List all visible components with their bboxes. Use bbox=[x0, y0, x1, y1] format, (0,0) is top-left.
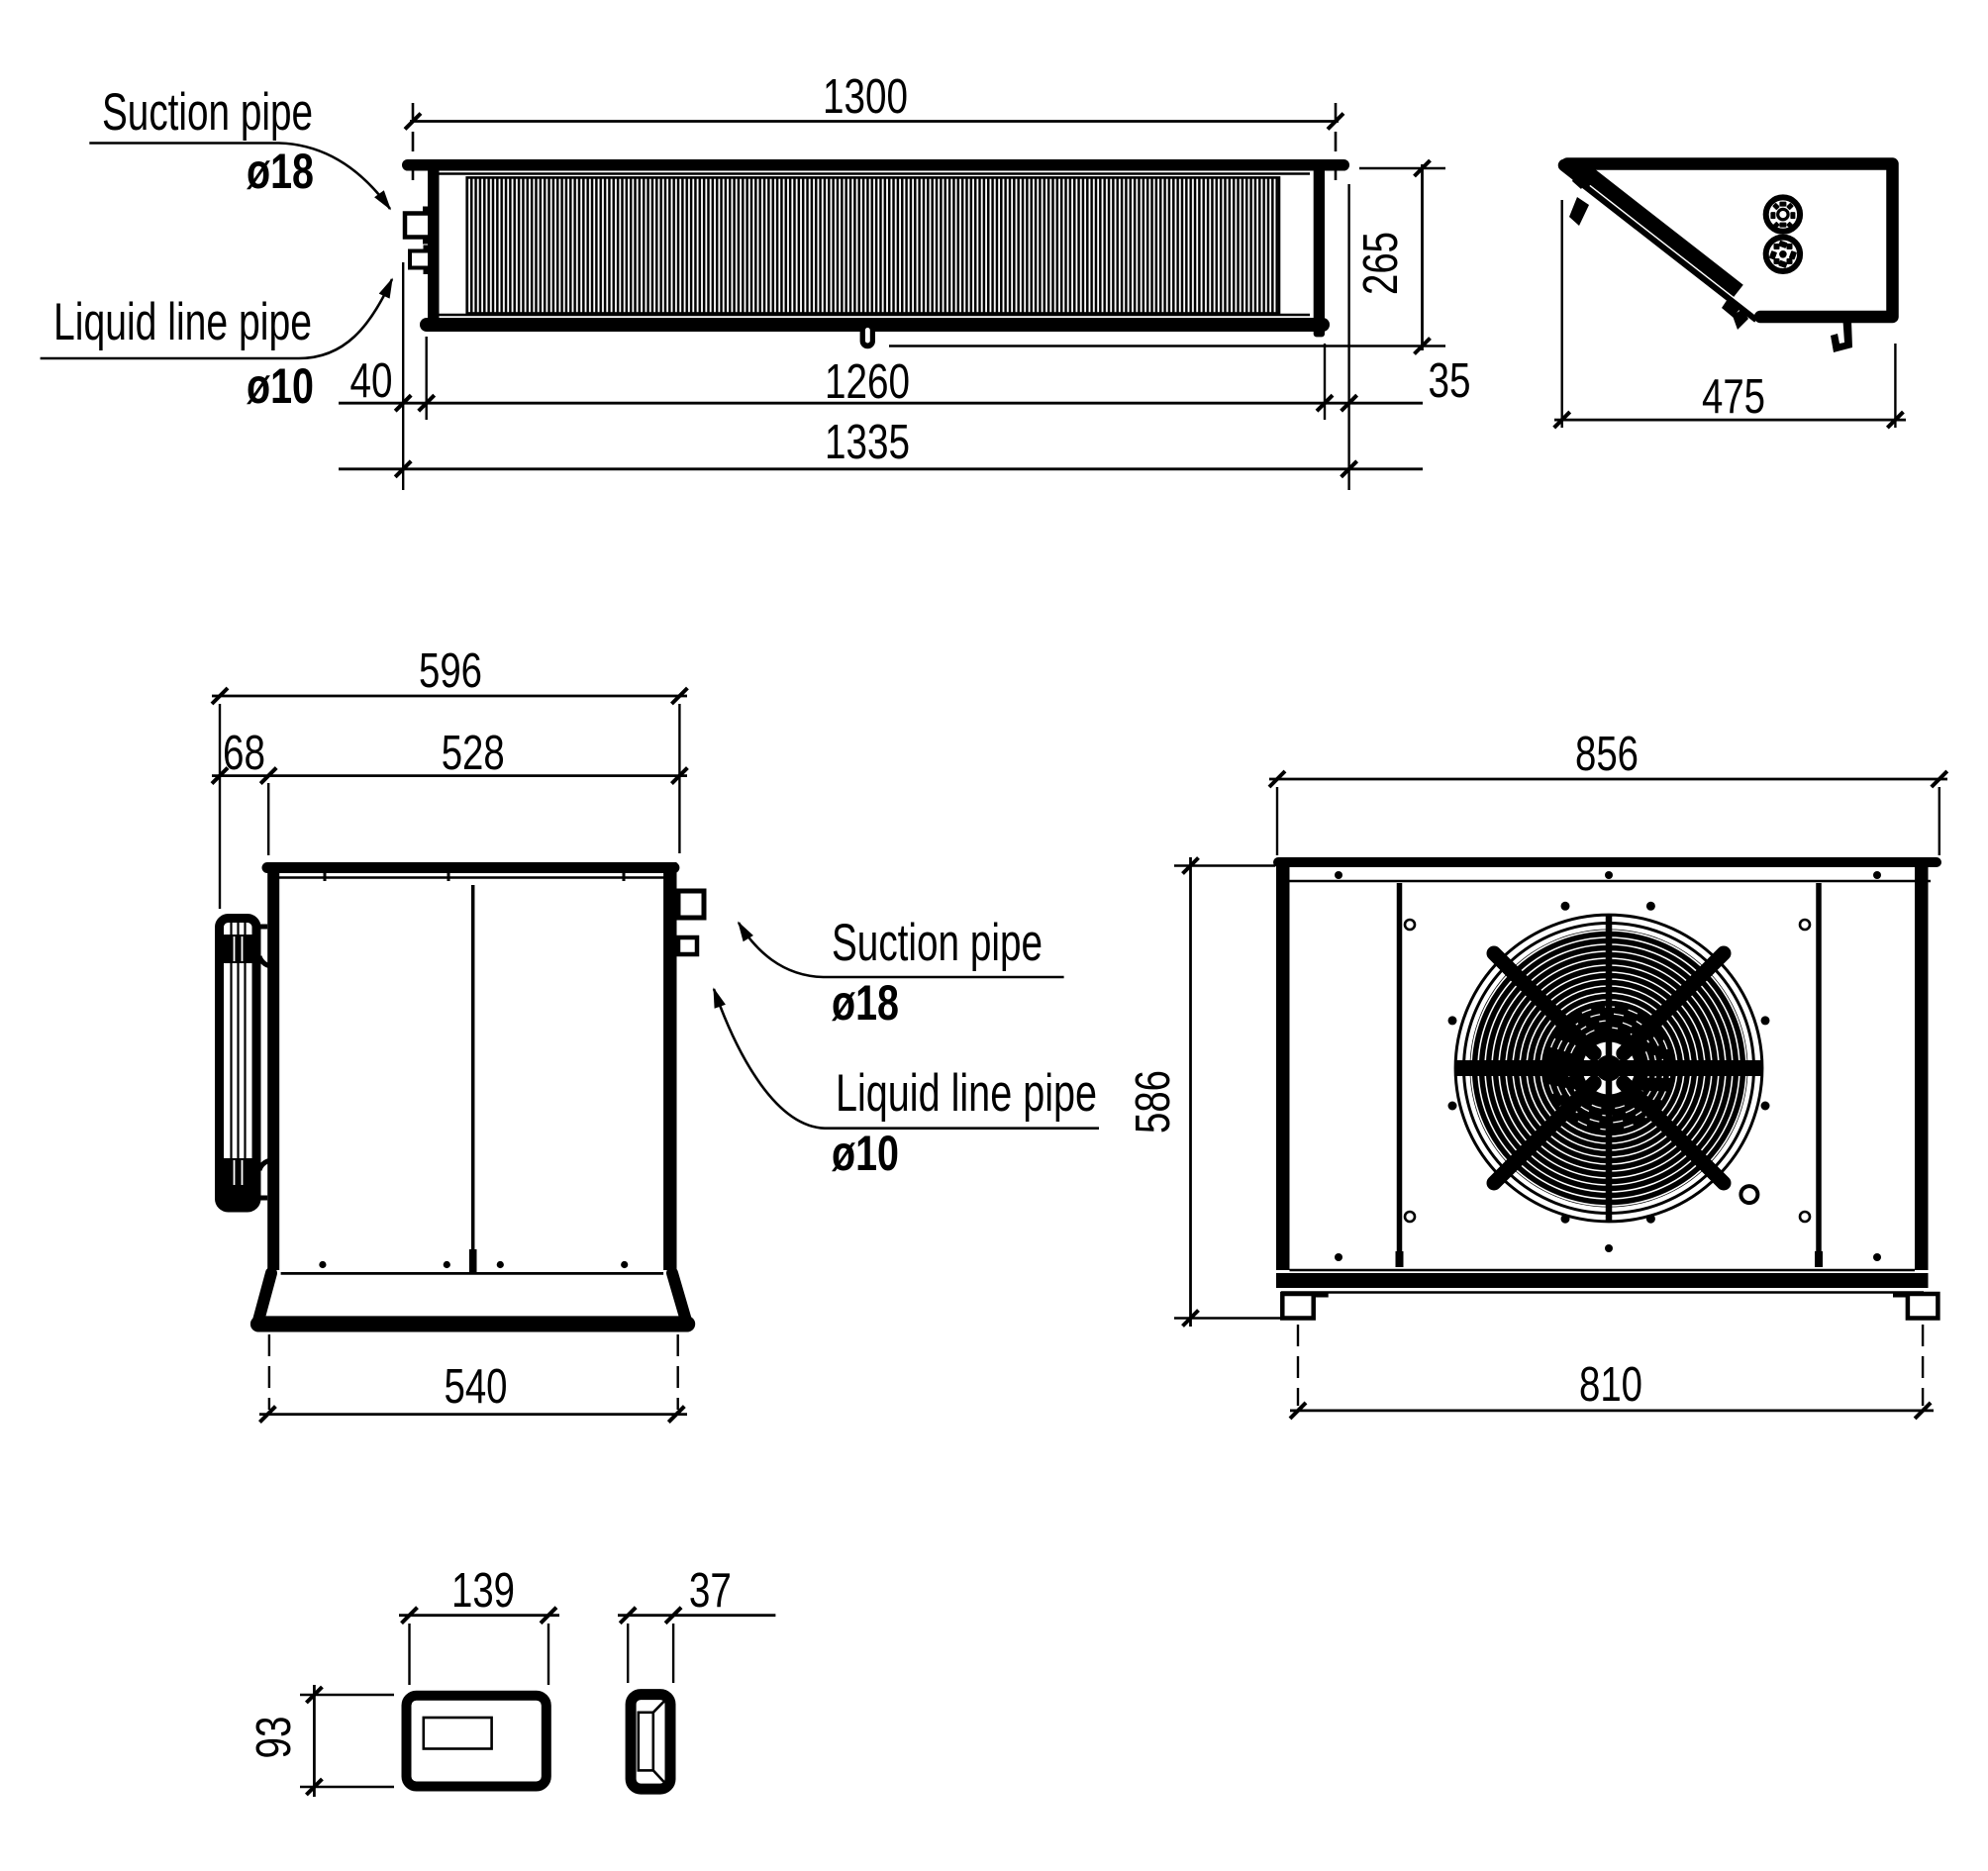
svg-text:139: 139 bbox=[451, 1564, 515, 1618]
svg-text:1300: 1300 bbox=[823, 70, 908, 124]
svg-text:93: 93 bbox=[248, 1717, 301, 1759]
svg-text:586: 586 bbox=[1127, 1070, 1180, 1133]
svg-text:475: 475 bbox=[1702, 370, 1765, 424]
svg-text:810: 810 bbox=[1579, 1358, 1642, 1412]
svg-text:Liquid line pipe: Liquid line pipe bbox=[53, 293, 312, 351]
svg-text:1335: 1335 bbox=[825, 416, 910, 469]
svg-text:68: 68 bbox=[223, 727, 265, 780]
svg-text:ø18: ø18 bbox=[832, 975, 899, 1031]
svg-text:35: 35 bbox=[1429, 354, 1471, 408]
svg-text:Suction pipe: Suction pipe bbox=[832, 914, 1043, 972]
svg-text:1260: 1260 bbox=[825, 355, 910, 409]
svg-text:528: 528 bbox=[442, 727, 505, 780]
svg-text:856: 856 bbox=[1575, 728, 1639, 781]
svg-text:ø18: ø18 bbox=[247, 144, 314, 199]
svg-text:Suction pipe: Suction pipe bbox=[102, 83, 313, 142]
svg-text:ø10: ø10 bbox=[832, 1126, 899, 1181]
svg-text:37: 37 bbox=[689, 1564, 732, 1618]
svg-text:265: 265 bbox=[1354, 232, 1408, 295]
svg-text:40: 40 bbox=[350, 354, 393, 408]
svg-text:596: 596 bbox=[419, 644, 482, 698]
svg-text:ø10: ø10 bbox=[247, 358, 314, 414]
svg-text:540: 540 bbox=[445, 1360, 508, 1414]
svg-text:Liquid line pipe: Liquid line pipe bbox=[836, 1064, 1097, 1123]
